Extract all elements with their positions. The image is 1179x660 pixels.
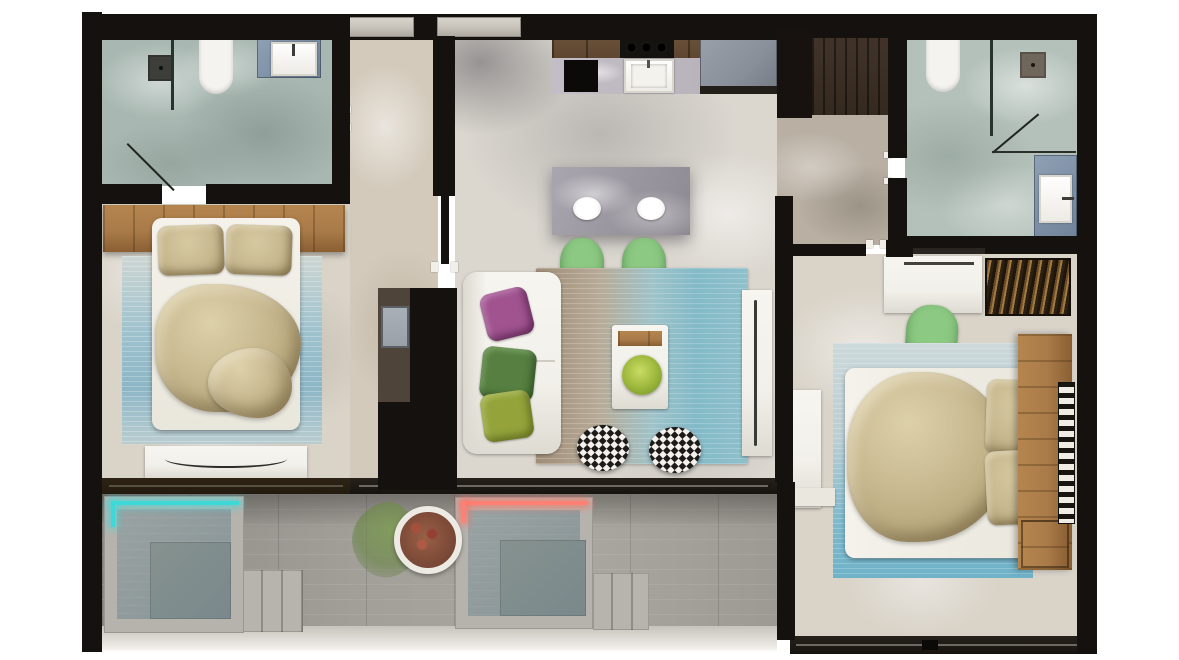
burner-2 <box>641 42 652 53</box>
bathroom-2-door-leaf <box>992 151 1076 153</box>
wall-bedroom2-top-left <box>790 244 866 256</box>
lounge-pit-1-core <box>150 542 231 619</box>
patterned-runner <box>1058 382 1075 524</box>
lounge-pit-2-core <box>500 540 586 616</box>
sofa-pillow-olive <box>479 389 535 443</box>
wall-closet-lower <box>378 402 412 490</box>
shower-2-glass-screen <box>990 36 993 136</box>
hallway-2-floor <box>777 115 888 245</box>
drain-dot <box>159 66 163 70</box>
wall-bedroom2-top-stub <box>886 240 913 257</box>
sliding-door-handle <box>922 640 938 650</box>
sliding-door-bedroom-2 <box>790 636 1097 654</box>
pouf-2 <box>649 427 701 473</box>
refrigerator <box>700 36 777 88</box>
led-strip-teal-side <box>111 501 115 527</box>
kitchen-faucet <box>647 60 650 68</box>
sliding-door-bedroom-1 <box>102 478 350 494</box>
decorative-rug <box>985 258 1071 316</box>
floor-plan <box>0 0 1179 660</box>
burner-3 <box>656 42 667 53</box>
refrigerator-base <box>700 86 777 94</box>
pantry-unit <box>777 30 812 118</box>
window-entry-2 <box>437 17 521 37</box>
coffee-table-tray <box>618 331 662 346</box>
wall-bath1-right <box>332 14 350 186</box>
terrace-door-step <box>795 488 835 506</box>
bed2-doorframe-tick-a <box>866 240 873 248</box>
media-sideboard <box>742 290 772 456</box>
living-doorframe-tick-b <box>451 262 458 272</box>
wall-hall2-bath2-bottom <box>888 178 907 245</box>
drain-2-dot <box>1031 63 1035 67</box>
wall-terrace-bedroom2 <box>777 482 795 640</box>
led-strip-red-side <box>462 501 466 523</box>
terrace-steps-2 <box>593 573 649 630</box>
wall-bath1-bottom-right <box>206 184 350 204</box>
media-sideboard-handle <box>754 300 757 446</box>
toilet-1 <box>199 36 233 94</box>
wall-left <box>82 12 102 652</box>
led-strip-red <box>462 501 588 505</box>
wall-hall-kitchen-thin <box>441 196 449 264</box>
coffee-table-plant <box>622 355 662 395</box>
desk-edge <box>904 262 974 265</box>
led-strip-teal <box>111 501 239 505</box>
vanity-2-faucet <box>1062 197 1074 200</box>
wall-hall2-bath2-top <box>888 14 907 158</box>
place-setting-1 <box>573 197 601 220</box>
wall-over-desk-line <box>913 248 985 254</box>
kitchen-island <box>552 167 690 235</box>
wardrobe <box>812 38 888 115</box>
living-doorframe-tick-a <box>431 262 438 272</box>
wall-hall-kitchen <box>433 36 455 196</box>
toilet-2 <box>926 36 960 92</box>
burner-1 <box>626 42 637 53</box>
place-setting-2 <box>637 197 665 220</box>
terrace-steps-1 <box>243 570 303 632</box>
closet-appliance <box>381 306 409 348</box>
nightstand <box>1021 520 1069 568</box>
wall-kitchen-bedroom2 <box>775 196 793 482</box>
wall-top <box>82 14 1097 40</box>
bed-1-pillow-left <box>157 224 225 276</box>
wall-bath1-bottom-left <box>82 184 162 204</box>
pouf-1 <box>577 425 629 471</box>
wall-closet-mass <box>410 288 457 490</box>
oven-range <box>564 60 598 92</box>
bed-1-pillow-right <box>225 224 293 276</box>
vanity-1-faucet <box>292 44 295 56</box>
shower-glass-screen <box>171 36 174 110</box>
wall-right <box>1077 14 1097 654</box>
plant-blossoms <box>404 516 444 556</box>
